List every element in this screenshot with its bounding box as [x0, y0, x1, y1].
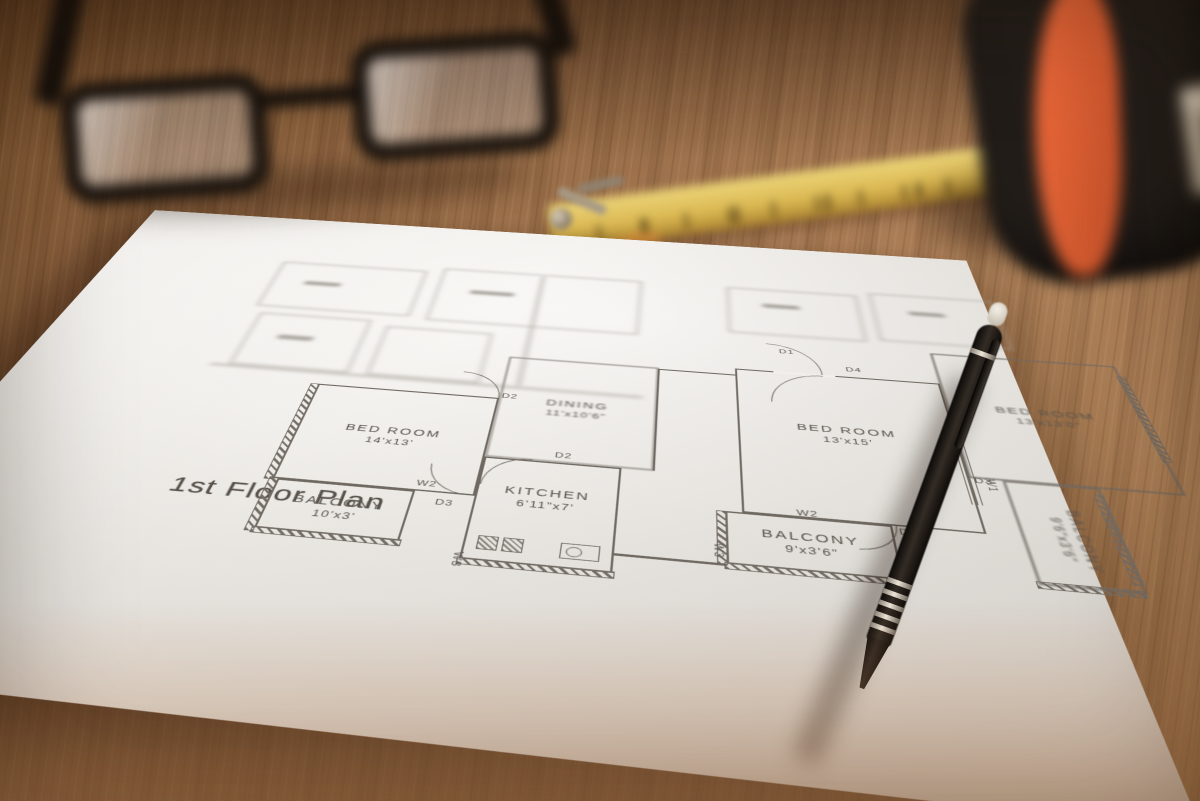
door-marker-d2: D2 — [554, 452, 573, 461]
room-kitchen: KITCHEN 6'11"x7' — [459, 456, 622, 573]
room-outline — [229, 312, 372, 372]
tape-measure-belt-clip — [1177, 75, 1200, 197]
wall-segment — [659, 369, 736, 376]
room-label: DINING 11'x10'6" — [498, 395, 655, 425]
eyeglasses-lens-right — [349, 29, 562, 163]
room-dims: 10'x3' — [310, 508, 357, 522]
stove-burner-icon — [475, 535, 499, 551]
door-marker-d3: D3 — [434, 498, 454, 508]
tape-measure-orange-stripe — [1030, 0, 1126, 277]
eyeglasses-lens-left — [59, 71, 272, 205]
window-marker-w3: W3 — [447, 551, 465, 567]
room-label: KITCHEN 6'11"x7' — [475, 482, 617, 516]
eyeglasses — [11, 0, 610, 258]
door-marker-d2: D2 — [501, 393, 519, 401]
room-label: BALCONY 10'x3' — [263, 491, 409, 526]
pen — [775, 300, 1095, 730]
pen-rotated — [842, 299, 1014, 712]
stove-burner-icon — [501, 537, 524, 553]
tape-clip-highlight — [1184, 94, 1195, 105]
window-marker-w3: W3 — [710, 542, 725, 558]
window-marker-w2: W2 — [415, 479, 438, 489]
sink-icon — [559, 543, 601, 562]
eyeglasses-bridge — [252, 84, 365, 109]
room-label: BED ROOM 14'x13' — [294, 419, 488, 454]
room-outline — [256, 262, 427, 317]
room-outline — [425, 268, 642, 334]
tape-measure — [930, 0, 1200, 310]
